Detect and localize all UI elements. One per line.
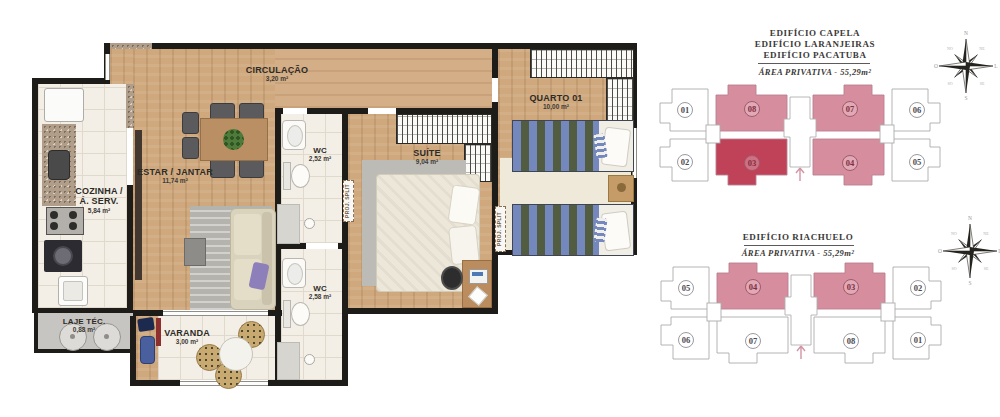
pillow bbox=[447, 184, 480, 226]
divider bbox=[758, 63, 870, 64]
divider bbox=[744, 245, 854, 246]
unit-badge: 02 bbox=[677, 154, 693, 170]
shower-drain bbox=[304, 218, 315, 229]
compass-rose-icon: N L S O NE SE SO NO bbox=[936, 211, 1000, 287]
single-bed bbox=[512, 120, 634, 172]
chair bbox=[182, 137, 199, 159]
laundry-tank bbox=[58, 276, 88, 306]
key-plan-drawing bbox=[650, 79, 950, 191]
desk bbox=[462, 260, 492, 308]
building-title: EDIFÍCIO PACATUBA bbox=[705, 50, 925, 61]
svg-text:O: O bbox=[934, 63, 938, 69]
svg-text:NE: NE bbox=[979, 46, 985, 51]
keyplan1-titles: EDIFÍCIO CAPELA EDIFÍCIO LARANJEIRAS EDI… bbox=[705, 28, 925, 61]
room-estar-floor bbox=[110, 49, 133, 84]
desk-chair bbox=[441, 266, 463, 290]
unit-badge: 07 bbox=[842, 101, 858, 117]
room-label-cozinha: COZINHA / Á. SERV. 5,84 m² bbox=[64, 186, 134, 214]
chair bbox=[239, 158, 264, 178]
nightstand bbox=[608, 175, 634, 202]
room-label-laje: LAJE TÉC. 0,88 m² bbox=[49, 317, 119, 334]
paper bbox=[468, 286, 488, 306]
shower-drain bbox=[304, 354, 315, 365]
toilet bbox=[283, 300, 291, 328]
wardrobe bbox=[606, 78, 634, 125]
svg-text:NO: NO bbox=[951, 231, 957, 236]
svg-text:O: O bbox=[938, 248, 942, 254]
room-label-suite: SUÍTE 9,04 m² bbox=[392, 148, 462, 166]
entry-arrow-icon bbox=[796, 168, 804, 181]
fridge bbox=[44, 88, 84, 122]
proj-split-tag: PROJ. SPLIT bbox=[495, 206, 506, 252]
washing-machine bbox=[44, 240, 82, 272]
brochure-page: PROJ. SPLIT PROJ. SPLIT COZINHA / Á. SER… bbox=[0, 0, 1000, 417]
unit-badge: 06 bbox=[678, 332, 694, 348]
key-plan-drawing bbox=[651, 257, 951, 369]
laptop bbox=[469, 269, 488, 284]
kitchen-sink bbox=[48, 150, 70, 180]
entry-arrow-icon bbox=[797, 346, 805, 359]
toilet bbox=[291, 302, 310, 326]
room-label-circulacao: CIRCULAÇÃO 3,20 m² bbox=[237, 65, 317, 83]
sofa bbox=[230, 208, 276, 310]
wardrobe bbox=[396, 114, 492, 144]
plant bbox=[223, 129, 244, 150]
unit-badge: 06 bbox=[909, 102, 925, 118]
room-label-wc1: WC 2,52 m² bbox=[300, 146, 340, 163]
svg-text:N: N bbox=[964, 30, 968, 36]
unit-badge: 02 bbox=[910, 280, 926, 296]
tv-panel bbox=[135, 130, 142, 280]
shower-area bbox=[277, 342, 300, 380]
svg-text:N: N bbox=[968, 215, 972, 221]
building-title: EDIFÍCIO CAPELA bbox=[705, 28, 925, 39]
unit-badge: 04 bbox=[745, 279, 761, 295]
svg-text:SE: SE bbox=[980, 81, 985, 86]
floor-plan: PROJ. SPLIT PROJ. SPLIT COZINHA / Á. SER… bbox=[0, 0, 650, 410]
counter-passthrough bbox=[126, 84, 134, 128]
room-label-estar: ESTAR / JANTAR 11,74 m² bbox=[125, 167, 225, 185]
svg-text:NE: NE bbox=[983, 231, 989, 236]
round-table bbox=[219, 337, 253, 371]
unit-badge: 07 bbox=[745, 333, 761, 349]
proj-split-tag: PROJ. SPLIT bbox=[343, 180, 354, 222]
unit-badge: 05 bbox=[909, 154, 925, 170]
chair bbox=[182, 112, 199, 134]
window bbox=[105, 54, 110, 80]
keyplan2-titles: EDIFÍCIO RIACHUELO bbox=[698, 232, 898, 243]
svg-text:SO: SO bbox=[951, 266, 956, 271]
svg-text:S: S bbox=[968, 280, 971, 286]
unit-badge: 01 bbox=[677, 102, 693, 118]
key-plan-riachuelo: 05 04 03 02 06 07 08 01 bbox=[651, 257, 951, 369]
svg-text:L: L bbox=[994, 63, 998, 69]
tv bbox=[184, 238, 206, 266]
key-plan-capela: 01 08 07 06 02 03 04 05 bbox=[650, 79, 950, 191]
unit-badge: 05 bbox=[678, 280, 694, 296]
shower-area bbox=[277, 204, 300, 244]
building-title: EDIFÍCIO LARANJEIRAS bbox=[705, 39, 925, 50]
keyplan1-subtitle: ÁREA PRIVATIVA - 55,29m² bbox=[705, 67, 925, 77]
wardrobe bbox=[530, 49, 634, 78]
svg-text:S: S bbox=[964, 95, 967, 101]
unit-badge: 08 bbox=[744, 101, 760, 117]
room-label-quarto: QUARTO 01 10,00 m² bbox=[521, 93, 591, 111]
room-label-varanda: VARANDA 3,00 m² bbox=[152, 328, 222, 346]
svg-text:NO: NO bbox=[947, 46, 953, 51]
building-title: EDIFÍCIO RIACHUELO bbox=[698, 232, 898, 243]
single-bed bbox=[512, 204, 634, 256]
unit-badge: 04 bbox=[842, 155, 858, 171]
toilet bbox=[283, 162, 291, 190]
window-sill bbox=[110, 43, 152, 49]
svg-text:SO: SO bbox=[947, 81, 952, 86]
toilet bbox=[291, 164, 310, 188]
unit-badge: 08 bbox=[843, 333, 859, 349]
unit-badge: 01 bbox=[910, 332, 926, 348]
svg-text:SE: SE bbox=[984, 266, 989, 271]
unit-badge: 03 bbox=[843, 279, 859, 295]
sliding-door bbox=[163, 311, 268, 316]
unit-badge: 03 bbox=[744, 155, 760, 171]
compass-rose-icon: N L S O NE SE SO NO bbox=[932, 26, 1000, 102]
room-label-wc2: WC 2,58 m² bbox=[300, 284, 340, 301]
